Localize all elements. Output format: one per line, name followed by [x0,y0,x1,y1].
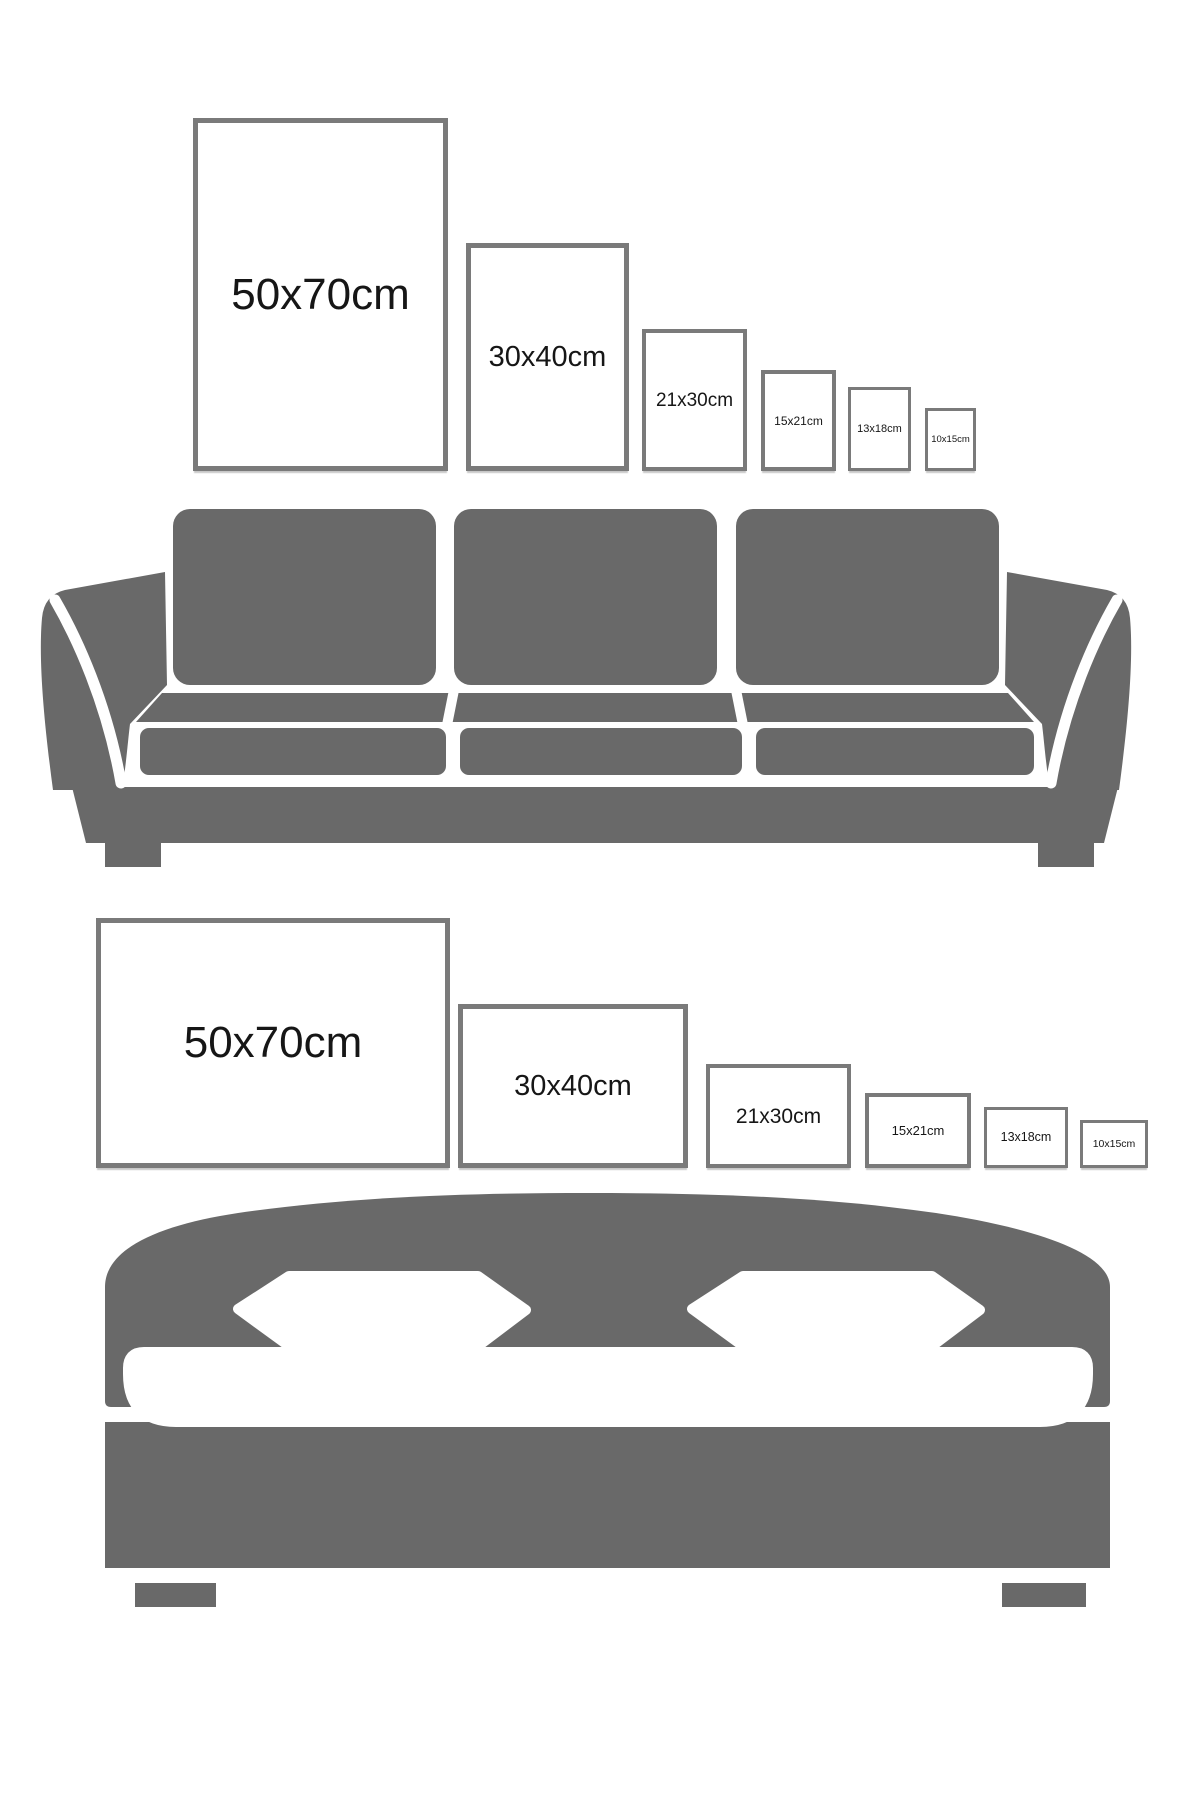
size-frame-portrait-15x21: 15x21cm [761,370,836,471]
size-frame-landscape-10x15: 10x15cm [1080,1120,1148,1168]
bed-icon [100,1185,1115,1610]
size-label: 30x40cm [514,1072,632,1101]
size-frame-landscape-50x70: 50x70cm [96,918,450,1168]
size-frame-portrait-10x15: 10x15cm [925,408,976,471]
size-label: 13x18cm [1001,1131,1052,1144]
poster-size-guide: 50x70cm 30x40cm 21x30cm 15x21cm 13x18cm … [0,0,1200,1800]
size-label: 10x15cm [1093,1139,1136,1150]
size-label: 50x70cm [184,1021,363,1065]
size-label: 13x18cm [857,424,902,435]
size-label: 15x21cm [774,415,823,427]
size-frame-landscape-30x40: 30x40cm [458,1004,688,1168]
size-label: 30x40cm [489,343,607,372]
sofa-icon [30,478,1142,870]
size-frame-portrait-50x70: 50x70cm [193,118,448,471]
size-frame-landscape-13x18: 13x18cm [984,1107,1068,1168]
size-frame-portrait-30x40: 30x40cm [466,243,629,471]
size-frame-landscape-15x21: 15x21cm [865,1093,971,1168]
size-label: 21x30cm [736,1106,821,1127]
size-label: 21x30cm [656,391,733,410]
size-frame-landscape-21x30: 21x30cm [706,1064,851,1168]
size-frame-portrait-13x18: 13x18cm [848,387,911,471]
size-frame-portrait-21x30: 21x30cm [642,329,747,471]
size-label: 10x15cm [931,435,970,445]
size-label: 50x70cm [231,273,410,317]
size-label: 15x21cm [892,1124,945,1137]
